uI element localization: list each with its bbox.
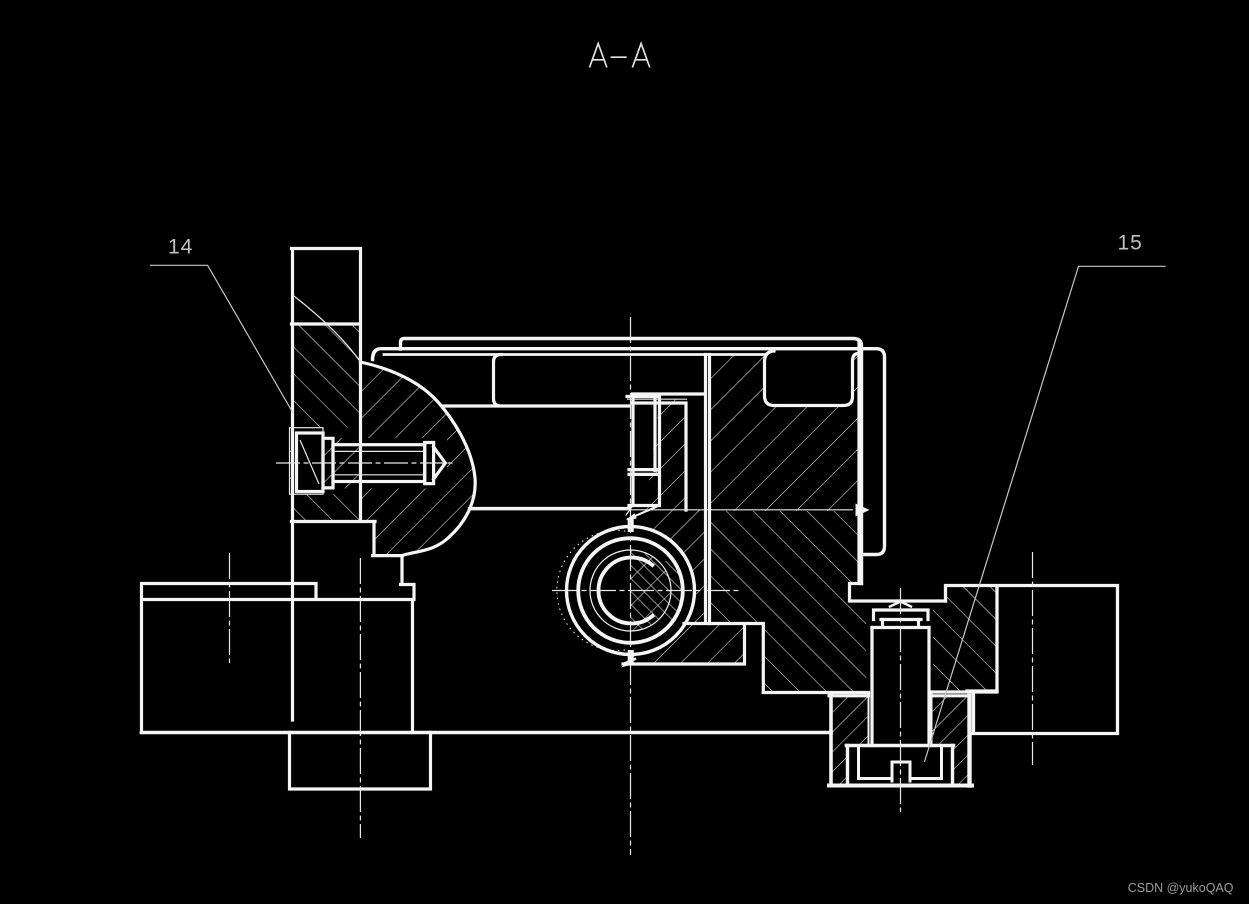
svg-text:15: 15 (1118, 232, 1143, 255)
svg-text:14: 14 (168, 236, 193, 259)
svg-text:CSDN @yukoQAQ: CSDN @yukoQAQ (1128, 881, 1234, 895)
